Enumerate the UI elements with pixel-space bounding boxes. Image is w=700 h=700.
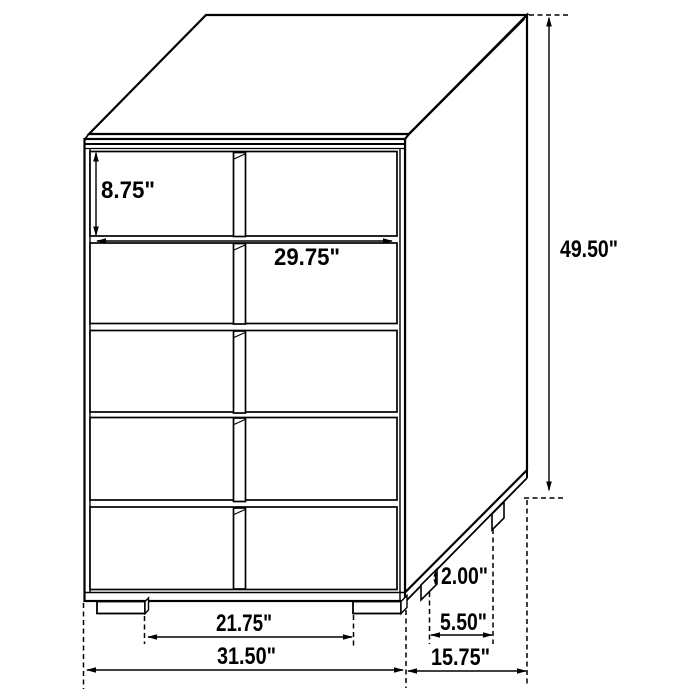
front-left-leg — [97, 602, 145, 614]
chest-dimension-diagram: 8.75" 29.75" 49.50" 2.00" 5.50" 15.75" 2… — [0, 0, 700, 700]
dim-label-overall-height: 49.50" — [560, 236, 618, 263]
drawer-handles — [234, 153, 246, 590]
front-left-leg-side — [145, 598, 149, 614]
dim-label-leg-width-spacing: 21.75" — [216, 610, 272, 637]
drawer-handle-3 — [234, 331, 246, 413]
dim-label-base-height: 2.00" — [441, 563, 488, 590]
dim-label-leg-depth-spacing: 5.50" — [440, 609, 487, 636]
dim-label-overall-depth: 15.75" — [431, 644, 490, 671]
dim-label-overall-width: 31.50" — [217, 643, 276, 670]
drawer-handle-5 — [234, 508, 246, 589]
drawer-handle-2 — [234, 244, 246, 325]
dim-label-drawer-width: 29.75" — [274, 244, 340, 271]
product-dimension-image: 8.75" 29.75" 49.50" 2.00" 5.50" 15.75" 2… — [0, 0, 700, 700]
dim-label-drawer-height: 8.75" — [101, 177, 155, 204]
drawer-handle-4 — [234, 418, 246, 502]
drawer-handle-1 — [234, 153, 246, 237]
front-right-leg — [353, 602, 401, 614]
